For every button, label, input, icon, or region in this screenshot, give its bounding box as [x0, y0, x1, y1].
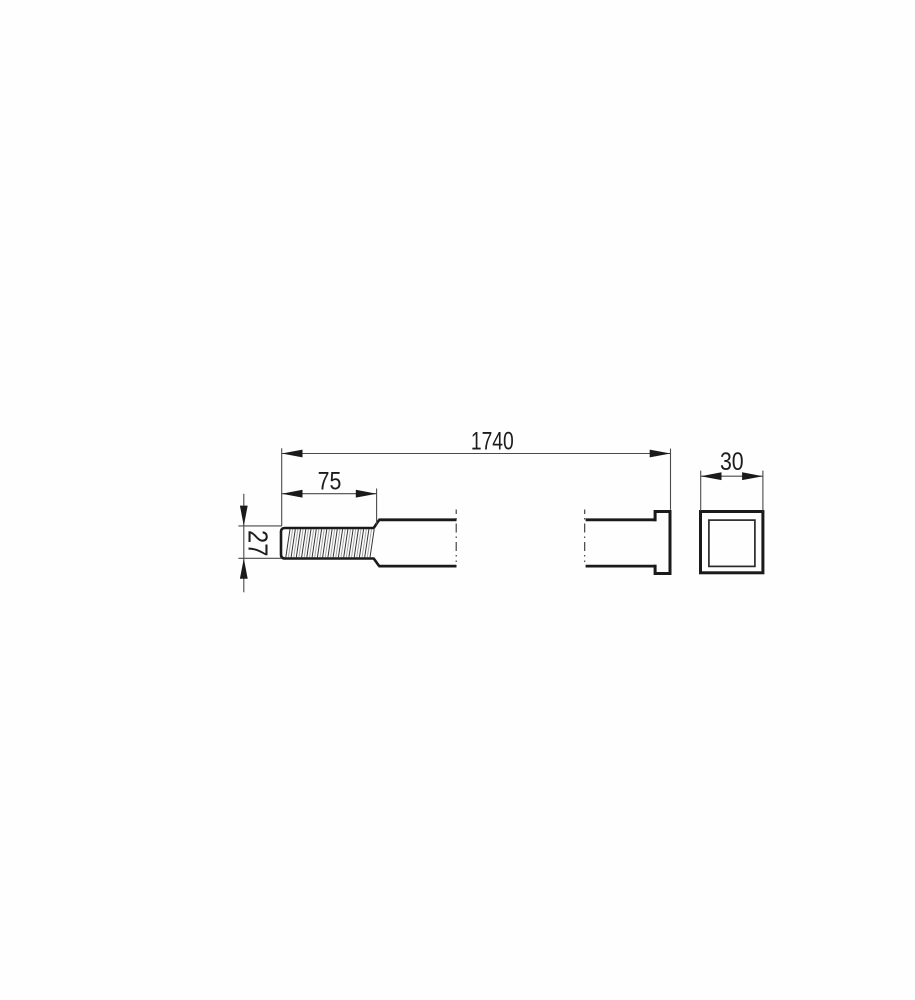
svg-text:75: 75	[318, 467, 342, 495]
svg-text:27: 27	[242, 530, 272, 556]
svg-text:1740: 1740	[471, 427, 514, 455]
svg-text:30: 30	[720, 447, 744, 475]
